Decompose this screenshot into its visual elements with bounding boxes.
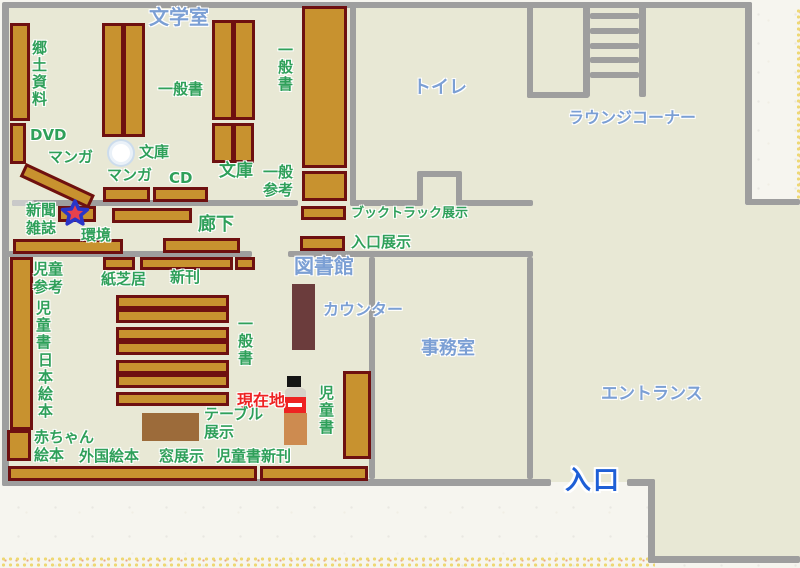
- shelf-label-environment: 環境: [81, 226, 111, 244]
- marker-body-icon: [284, 413, 307, 445]
- room-label-counter: カウンター: [323, 300, 403, 319]
- room-label-lounge: ラウンジコーナー: [568, 108, 696, 127]
- shelf-label-bunko-b: 文庫: [219, 161, 253, 181]
- current-location-star-icon: [60, 198, 90, 228]
- room-label-corridor: 廊下: [198, 214, 234, 236]
- shelf-label-manga-a: マンガ: [48, 148, 93, 166]
- shelf-label-general-center: 一般書: [236, 316, 254, 367]
- shelf-center-row: [116, 392, 229, 406]
- pillar-icon: [112, 144, 130, 162]
- wall-lobby-left: [648, 479, 655, 563]
- shelf-booktruck-display: [301, 206, 346, 220]
- shelf-manga-row: [103, 187, 150, 202]
- shelf-label-general-right: 一般書: [276, 42, 294, 93]
- room-label-entrance-door: 入口: [565, 466, 621, 497]
- stairs-step-icon: [590, 57, 639, 63]
- shelf-label-children-books-right: 児童書: [317, 385, 335, 436]
- library-floor-map: 文学室 トイレ ラウンジコーナー 図書館 カウンター 事務室 エントランス 入口…: [0, 0, 800, 568]
- shelf-children-right: [343, 371, 371, 459]
- shelf-label-table-display: テーブル 展示: [204, 405, 263, 441]
- marker-head-icon: [287, 376, 301, 387]
- paper-speckle-bottom: [0, 556, 655, 568]
- shelf-label-dvd: DVD: [30, 126, 67, 144]
- shelf-general-b: [123, 23, 145, 137]
- stairs-rail-right: [639, 6, 646, 97]
- wall-toilet-step: [527, 92, 589, 98]
- room-label-library: 図書館: [294, 254, 354, 278]
- stairs-step-icon: [590, 28, 639, 34]
- shelf-label-manga-b: マンガ: [107, 166, 152, 184]
- shelf-local-materials: [10, 23, 30, 121]
- wall-toilet-right: [527, 6, 533, 98]
- shelf-label-kamishibai: 紙芝居: [101, 270, 146, 288]
- shelf-center-row: [116, 360, 229, 374]
- shelf-bunko-b: [233, 123, 254, 163]
- marker-sign-icon: [284, 397, 306, 413]
- shelf-label-bunko-a: 文庫: [139, 143, 169, 161]
- shelf-label-local-materials: 郷土資料: [30, 40, 48, 108]
- stairs-step-icon: [590, 72, 639, 78]
- marker-collar-icon: [285, 387, 306, 397]
- shelf-label-foreign-picture-books: 外国絵本: [79, 447, 139, 465]
- shelf-bottom-left: [8, 466, 257, 481]
- shelf-label-newspaper: 新聞 雑誌: [26, 201, 56, 237]
- shelf-label-window-display: 窓展示: [159, 447, 204, 465]
- shelf-center-row: [116, 374, 229, 388]
- shelf-label-cd: CD: [169, 169, 192, 187]
- stairs-step-icon: [590, 43, 639, 49]
- shelf-center-row: [116, 327, 229, 341]
- shelf-label-general-reference: 一般 参考: [263, 163, 293, 199]
- shelf-environment: [112, 208, 192, 223]
- shelf-general-a: [102, 23, 124, 137]
- room-label-toilet: トイレ: [413, 77, 467, 99]
- shelf-general-tall-right: [302, 6, 347, 168]
- shelf-label-japanese-picture-books: 日本絵本: [36, 352, 54, 420]
- room-label-entrance-hall: エントランス: [601, 384, 703, 404]
- shelf-bottom-right: [260, 466, 368, 481]
- shelf-bunko-a: [212, 123, 234, 163]
- wall-office-right: [527, 257, 533, 479]
- shelf-kamishibai: [103, 257, 135, 270]
- shelf-general-d: [233, 20, 255, 120]
- shelf-baby-books: [7, 430, 31, 461]
- shelf-dvd: [10, 123, 26, 164]
- stairs-rail-left: [583, 6, 590, 97]
- shelf-corridor-long-right: [163, 238, 240, 253]
- room-label-office: 事務室: [421, 338, 475, 360]
- current-location-marker: [284, 376, 307, 445]
- wall-outer-right-upper: [745, 2, 752, 203]
- wall-lobby-bottom: [648, 556, 800, 563]
- shelf-cd-row: [153, 187, 208, 202]
- floor-entrance-lobby: [655, 480, 800, 560]
- shelf-children-left-tall: [10, 257, 33, 430]
- display-table: [142, 413, 199, 441]
- shelf-label-booktruck: ブックトラック展示: [351, 206, 468, 222]
- shelf-general-c: [212, 20, 234, 120]
- shelf-center-row: [116, 341, 229, 355]
- shelf-entrance-display: [300, 236, 345, 251]
- wall-right-notch: [745, 199, 800, 205]
- shelf-label-children-new-arrivals: 児童書新刊: [216, 447, 291, 465]
- shelf-label-children-books-left: 児童書: [34, 300, 52, 351]
- counter-desk: [292, 284, 315, 350]
- wall-toilet-left: [350, 6, 356, 206]
- marker-sign-stripe: [288, 403, 302, 407]
- room-label-literature: 文学室: [149, 5, 209, 29]
- shelf-general-reference: [302, 171, 347, 201]
- wall-toilet-alcove-left: [417, 174, 423, 206]
- shelf-small-right: [235, 257, 255, 270]
- wall-outer-left: [2, 2, 9, 486]
- shelf-label-general-top: 一般書: [158, 80, 203, 98]
- paper-speckle-right: [795, 8, 800, 203]
- stairs-step-icon: [590, 13, 639, 19]
- shelf-label-new-arrivals: 新刊: [170, 268, 200, 286]
- shelf-label-entrance-display: 入口展示: [351, 233, 411, 251]
- shelf-center-row: [116, 309, 229, 323]
- shelf-center-row: [116, 295, 229, 309]
- shelf-label-children-reference: 児童 参考: [33, 260, 63, 296]
